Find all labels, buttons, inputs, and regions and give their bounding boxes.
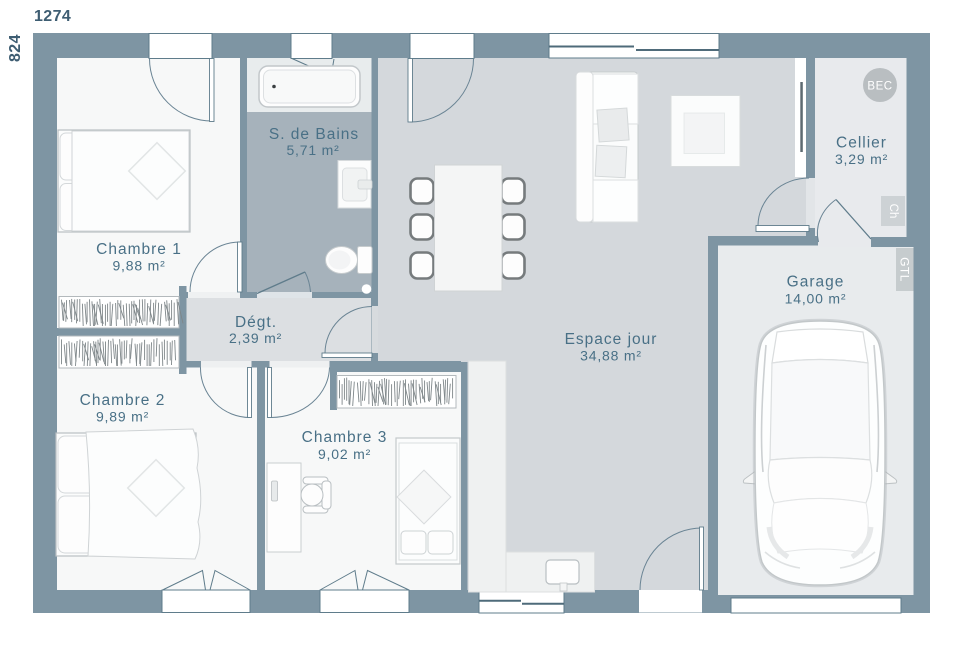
svg-text:9,02 m²: 9,02 m² bbox=[318, 446, 371, 462]
svg-text:Garage: Garage bbox=[787, 274, 845, 291]
svg-text:Chambre 3: Chambre 3 bbox=[302, 429, 388, 446]
svg-text:GTL: GTL bbox=[898, 257, 912, 282]
svg-text:Cellier: Cellier bbox=[836, 135, 887, 152]
svg-text:Espace jour: Espace jour bbox=[565, 331, 658, 348]
svg-text:34,88 m²: 34,88 m² bbox=[580, 348, 642, 364]
svg-text:Chambre 1: Chambre 1 bbox=[96, 241, 182, 258]
svg-text:1274: 1274 bbox=[34, 8, 71, 25]
svg-text:9,88 m²: 9,88 m² bbox=[112, 258, 165, 274]
svg-text:Ch: Ch bbox=[887, 204, 899, 219]
svg-text:824: 824 bbox=[7, 34, 24, 62]
svg-text:14,00 m²: 14,00 m² bbox=[785, 291, 847, 307]
svg-text:Dégt.: Dégt. bbox=[235, 314, 277, 331]
svg-text:5,71 m²: 5,71 m² bbox=[286, 142, 339, 158]
svg-text:Chambre 2: Chambre 2 bbox=[80, 392, 166, 409]
svg-text:BEC: BEC bbox=[867, 81, 892, 93]
svg-text:S. de Bains: S. de Bains bbox=[269, 126, 359, 143]
svg-text:3,29 m²: 3,29 m² bbox=[835, 151, 888, 167]
svg-text:2,39 m²: 2,39 m² bbox=[229, 330, 282, 346]
svg-text:9,89 m²: 9,89 m² bbox=[96, 409, 149, 425]
